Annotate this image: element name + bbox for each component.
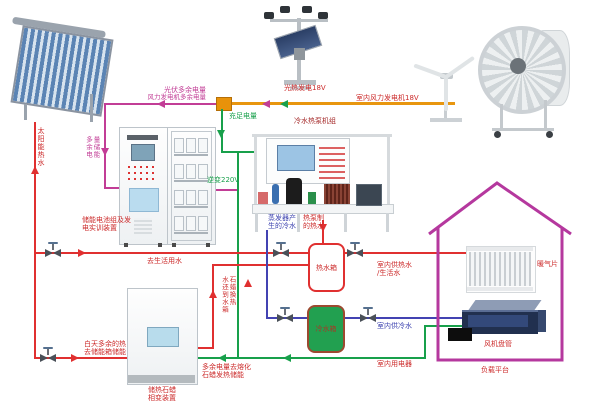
appliance-wire [196,357,426,359]
arrow-to-paraffin-power [218,354,226,362]
valve-storage-line [40,347,56,363]
arrow-gen-left-1 [262,100,270,108]
pv-light-tracker [262,4,338,96]
heatpump-hot-label: 热泵制的热水 [303,214,324,230]
fan-leg [544,100,547,130]
turbine-base [430,118,462,122]
indoor-cold-label: 室内供冷水 [377,322,412,330]
hp-button-grid [319,143,345,179]
turbine-blade [413,63,446,78]
inverter-label: 逆变220V [207,176,239,184]
paraffin-return-pipe [212,264,308,266]
cabinet-blue-module [129,188,159,212]
fan-leg [500,104,503,130]
pump-green [308,192,316,204]
turbine-blade [445,56,475,79]
arrow-gen-left-2 [280,100,288,108]
battery-shelf [174,190,208,208]
cabinet-foot [206,243,210,247]
fan-coil-top [468,300,541,310]
lamp-icon [280,6,290,13]
lamp-icon [302,6,312,13]
lamp-icon [318,12,328,19]
sufficient-power-label: 充足电量 [229,112,257,120]
valve-cold-tank-in [277,307,293,323]
cabinet-foot [172,243,176,247]
arrow-solar-up [31,166,39,174]
surplus-storage-label: 多余电 量储能 [84,136,99,159]
indoor-hot-label: 室内供热水/生活水 [377,261,412,277]
cold-water-tank-label: 冷水箱 [316,325,337,333]
heat-exchanger-coil [324,184,350,204]
fan-coil-motor [448,328,472,341]
surplus-to-paraffin-label: 多余电量去熔化石蜡发热储能 [202,363,251,379]
cabinet-foot [158,243,162,247]
indicator-row [128,178,158,180]
cabinet-header-strip [127,135,158,140]
load-platform-label: 负载平台 [481,366,509,374]
fan-coil-label: 风机盘管 [484,340,512,348]
wind-surplus-label: 风力发电机多余电量 [140,94,206,102]
arrow-paraffin-up [209,290,217,298]
cold-water-tank: 冷水箱 [307,305,345,353]
collector-tubes [10,25,113,116]
arrow-surplus-down [101,148,109,156]
evaporator-cold-label: 蒸发器产生的冷水 [268,214,296,230]
collector-leg [90,94,93,122]
battery-device-label: 储能电池组及发电实训装置 [82,216,131,232]
arrow-storage-right [71,354,79,362]
paraffin-screen [147,327,179,347]
tracker-mount [294,48,305,60]
junction-box [216,97,232,111]
lamp-icon [264,12,274,19]
pump [258,192,268,204]
cabinet-screen [131,144,155,161]
bench-post [254,134,257,206]
wheel-icon [546,131,553,138]
hp-control-panel [266,138,350,184]
bench-leg [344,213,347,232]
fan-coil-endcap [538,310,546,332]
fan-coil-panel [468,315,528,327]
turbine-blade [444,77,448,111]
energy-system-diagram: 热水箱 冷水箱 [0,0,600,419]
cabinet-foot [124,243,128,247]
battery-shelf [174,138,208,156]
arrow-domestic-right [78,249,86,257]
paraffin-device-label: 储热石蜡相变装置 [134,386,190,402]
bench-post [387,134,390,206]
radiator-footer [467,287,533,291]
bench-leg [386,213,389,232]
cabinet-vent [134,218,152,234]
compressor [286,178,302,204]
indoor-appliance-label: 室内用电器 [377,360,412,368]
valve-hot-tank-out [347,242,363,258]
hp-screen [277,145,315,171]
indicator-row [128,166,158,168]
fan-frame [492,128,554,131]
accumulator [272,184,279,204]
solar-gen-label: 光热发电18V [284,84,326,92]
collector-leg [24,104,27,120]
paraffin-return-label: 水还到水箱 石蜡换热 [220,276,235,314]
indoor-wind-gen-label: 室内风力发电机18V [356,94,419,102]
bench-top-bar [252,134,392,137]
radiator [466,246,536,293]
battery-shelf [174,216,208,234]
solar-collector [8,22,113,126]
radiator-fins [469,252,531,286]
radiator-header [467,247,533,251]
arrow-return-up [244,279,252,287]
bench-leg [297,213,300,232]
paraffin-storage-device [127,288,198,385]
solar-hot-water-label: 太阳能热水 [37,127,45,167]
valve-domestic-left [45,242,61,258]
paraffin-return-riser [212,264,214,348]
wheel-icon [494,131,501,138]
solar-hot-pipe [34,122,36,359]
valve-cold-tank-out [360,307,376,323]
wind-turbine-rig [420,18,595,136]
condenser-unit [356,184,382,206]
tracker-crossbar [270,19,328,22]
arrow-appliance [283,354,291,362]
evaporator-cold-pipe [266,230,268,319]
paraffin-base [128,375,195,383]
heat-pump-title: 冷水热泵机组 [294,117,336,125]
battery-cabinet [167,127,216,245]
hot-water-tank-label: 热水箱 [316,264,337,272]
day-surplus-heat-label: 白天多余的热去储能箱储能 [84,340,126,356]
fan-coil-unit [448,298,550,344]
radiator-label: 暖气片 [537,260,558,268]
indicator-row [128,172,158,174]
to-domestic-label: 去生活用水 [147,257,182,265]
battery-shelf [174,164,208,182]
arrow-charge-down [217,130,225,138]
hot-water-tank: 热水箱 [308,243,345,292]
valve-hot-tank-in [273,242,289,258]
fan-hub-icon [510,58,526,74]
bench-leg [255,213,258,232]
